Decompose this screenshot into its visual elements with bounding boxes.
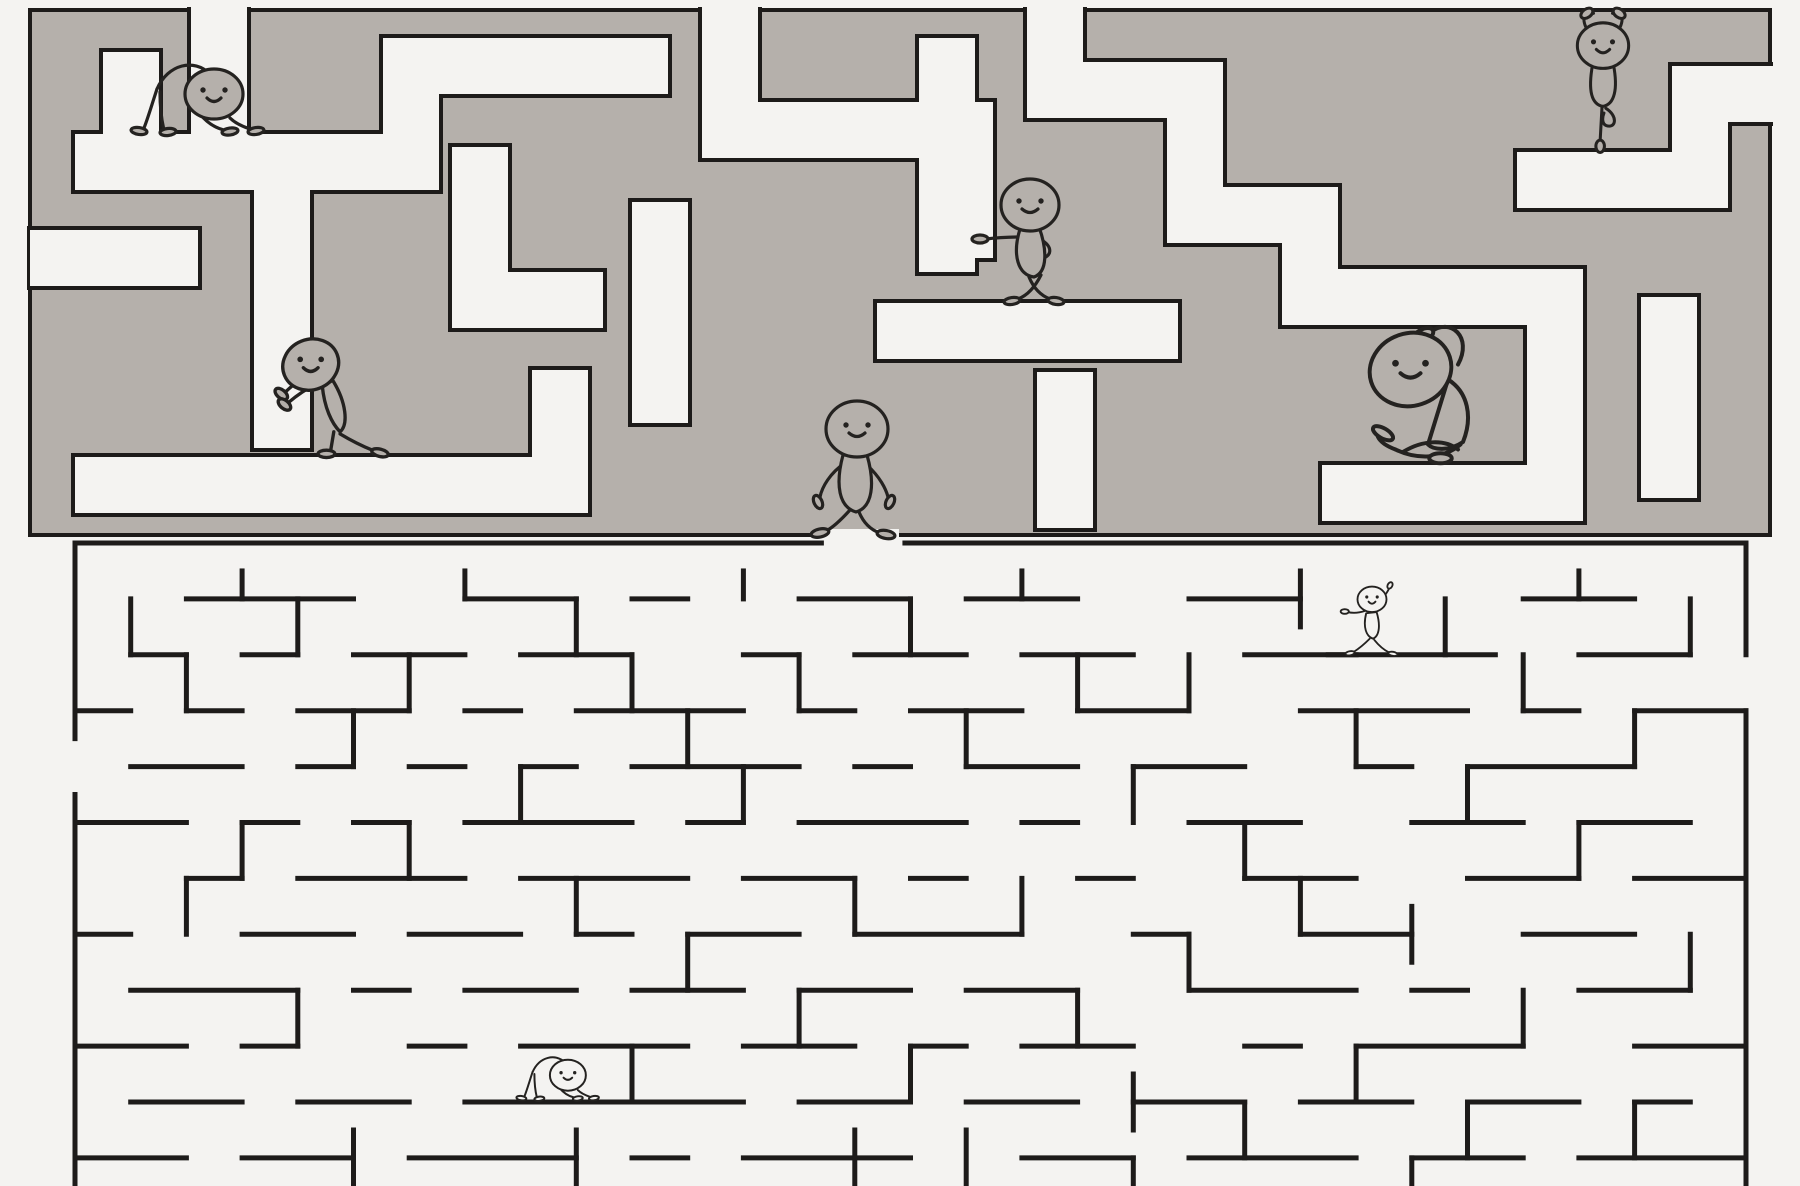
yoga-maze-illustration — [0, 0, 1800, 1186]
maze-illustration-stage — [0, 0, 1800, 1186]
upper-maze — [30, 0, 1786, 547]
